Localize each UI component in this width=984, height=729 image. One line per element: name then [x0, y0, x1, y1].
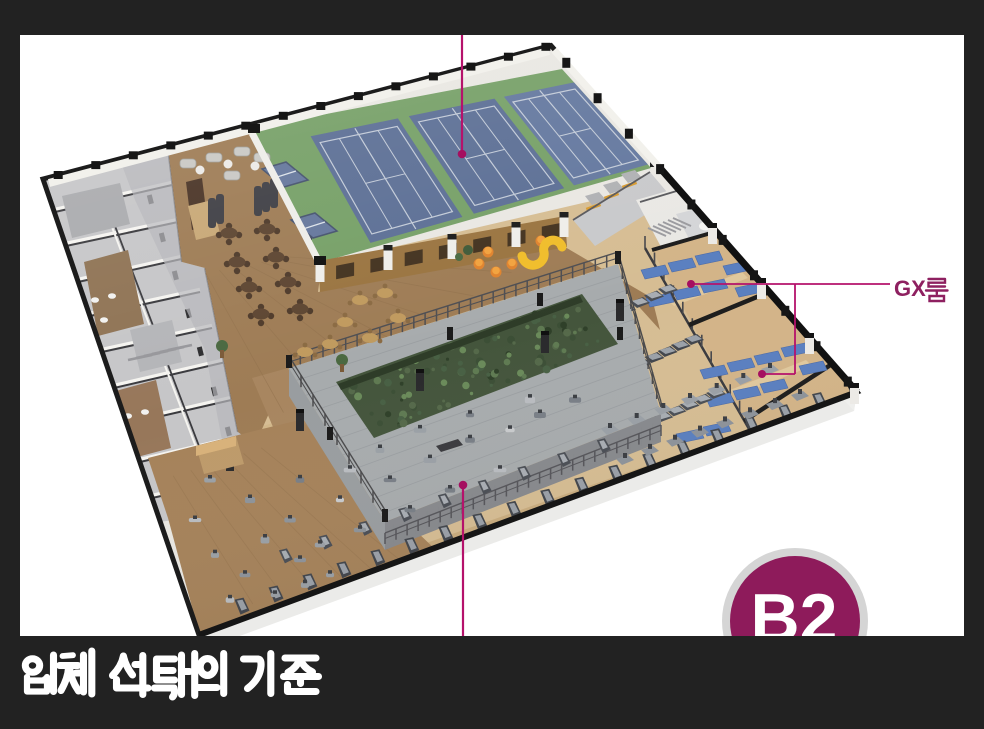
svg-text:GX: GX [894, 276, 926, 301]
